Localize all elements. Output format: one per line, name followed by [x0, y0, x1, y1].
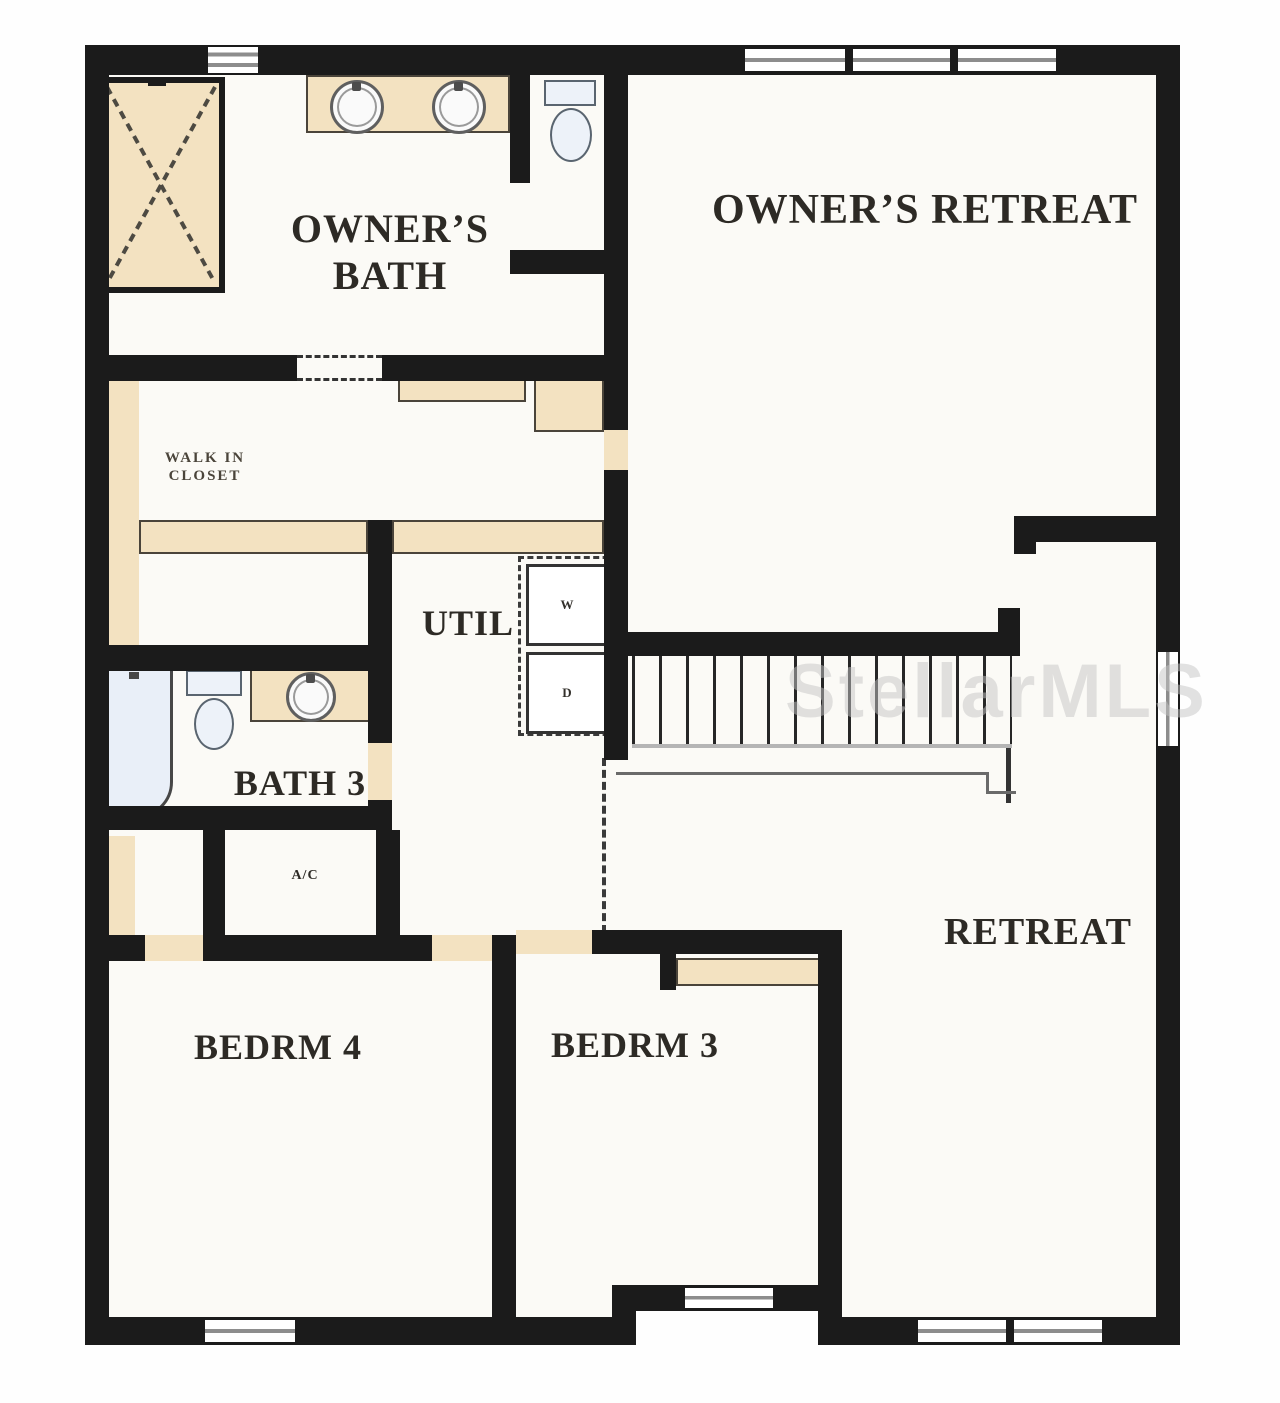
door-opening-bedroom4: [432, 935, 492, 961]
washer-label: W: [561, 597, 574, 613]
stair-rail-bottom-line: [632, 744, 1012, 748]
floor-plan: W D OWNER’S BA: [0, 0, 1280, 1403]
wall-bath3-south: [85, 806, 392, 830]
window-retreat-south-2: [1014, 1320, 1102, 1342]
hall-linen-cabinet: [534, 374, 604, 432]
wall-owners-retreat-west-upper: [604, 45, 628, 430]
wall-retreat-north-stub: [1014, 542, 1036, 554]
stair-below-dashed-line: [602, 758, 606, 933]
wall-exterior-notch-step: [612, 1285, 636, 1345]
wall-bedroom3-north: [592, 930, 842, 954]
wall-bedroom4-north-b: [203, 935, 432, 961]
bedroom4-closet-shelf: [109, 836, 135, 936]
bedroom4-label: BEDRM 4: [168, 1026, 388, 1068]
window-owners-bath: [208, 47, 258, 73]
toilet-tank-owners-bath: [544, 80, 596, 106]
shower-head-icon: [148, 77, 166, 86]
wall-toilet-compartment-v: [510, 75, 530, 183]
util-label: UTIL: [405, 602, 531, 644]
window-owners-retreat-2: [853, 49, 950, 71]
walk-in-closet-label: WALK IN CLOSET: [135, 450, 275, 485]
owners-bath-label-line1: OWNER’S: [250, 205, 530, 252]
wall-stair-north-stub: [998, 608, 1020, 632]
wall-owners-retreat-west-lower: [604, 470, 628, 760]
window-owners-retreat-1: [745, 49, 845, 71]
wall-bedroom3-closet-divider: [660, 954, 676, 990]
stair-edge-step-h: [986, 791, 1016, 794]
dryer-label: D: [562, 685, 571, 701]
retreat-label: RETREAT: [928, 910, 1148, 955]
bath3-sink: [286, 672, 336, 722]
wall-exterior-bottom-left: [85, 1317, 636, 1345]
bedroom3-label: BEDRM 3: [525, 1024, 745, 1066]
toilet-bowl-owners-bath: [550, 108, 592, 162]
window-owners-retreat-3: [958, 49, 1056, 71]
ac-label: A/C: [270, 868, 340, 885]
closet-shelf-band-left: [109, 381, 139, 645]
washer-box: W: [526, 564, 608, 646]
wall-closet-bath3-divider: [85, 645, 392, 671]
window-retreat-south-1: [918, 1320, 1006, 1342]
owners-bath-label: OWNER’S BATH: [250, 205, 530, 299]
wall-exterior-left: [85, 45, 109, 1345]
window-bedroom3: [685, 1288, 773, 1308]
door-opening-bedroom3: [516, 930, 592, 954]
stair-newel-post: [1006, 748, 1011, 803]
stellar-mls-watermark: StellarMLS: [785, 648, 1208, 735]
closet-shelf-band-south: [139, 520, 368, 554]
bath3-label: BATH 3: [210, 762, 390, 804]
wall-bedroom4-north-a: [85, 935, 145, 961]
shower-stall: [97, 77, 225, 293]
dryer-box: D: [526, 652, 608, 734]
door-opening-bedroom4-closet: [145, 935, 203, 961]
vanity-sink-right: [432, 80, 486, 134]
wall-closet-east: [368, 520, 392, 743]
owners-retreat-label: OWNER’S RETREAT: [645, 186, 1205, 236]
wall-bedroom3-retreat-divider: [818, 930, 842, 1345]
bedroom3-closet-shelf: [676, 958, 830, 986]
stair-edge-line: [616, 772, 988, 775]
walk-in-closet-label-line2: CLOSET: [135, 468, 275, 486]
toilet-bowl-bath3: [194, 698, 234, 750]
hall-shelf-band: [392, 520, 604, 554]
footprint-notch: [636, 1311, 818, 1351]
wall-retreat-north: [1014, 516, 1156, 542]
wall-ac-east: [376, 830, 400, 935]
shower-x-mark: [103, 83, 219, 287]
vanity-sink-left: [330, 80, 384, 134]
walk-in-closet-label-line1: WALK IN: [135, 450, 275, 468]
cased-opening-closet: [297, 355, 382, 381]
toilet-tank-bath3: [186, 670, 242, 696]
owners-bath-label-line2: BATH: [250, 252, 530, 299]
wall-ac-west: [203, 830, 225, 935]
door-opening-owners-retreat: [604, 430, 628, 470]
window-bedroom4: [205, 1320, 295, 1342]
wall-bedroom4-bedroom3-divider: [492, 935, 516, 1345]
